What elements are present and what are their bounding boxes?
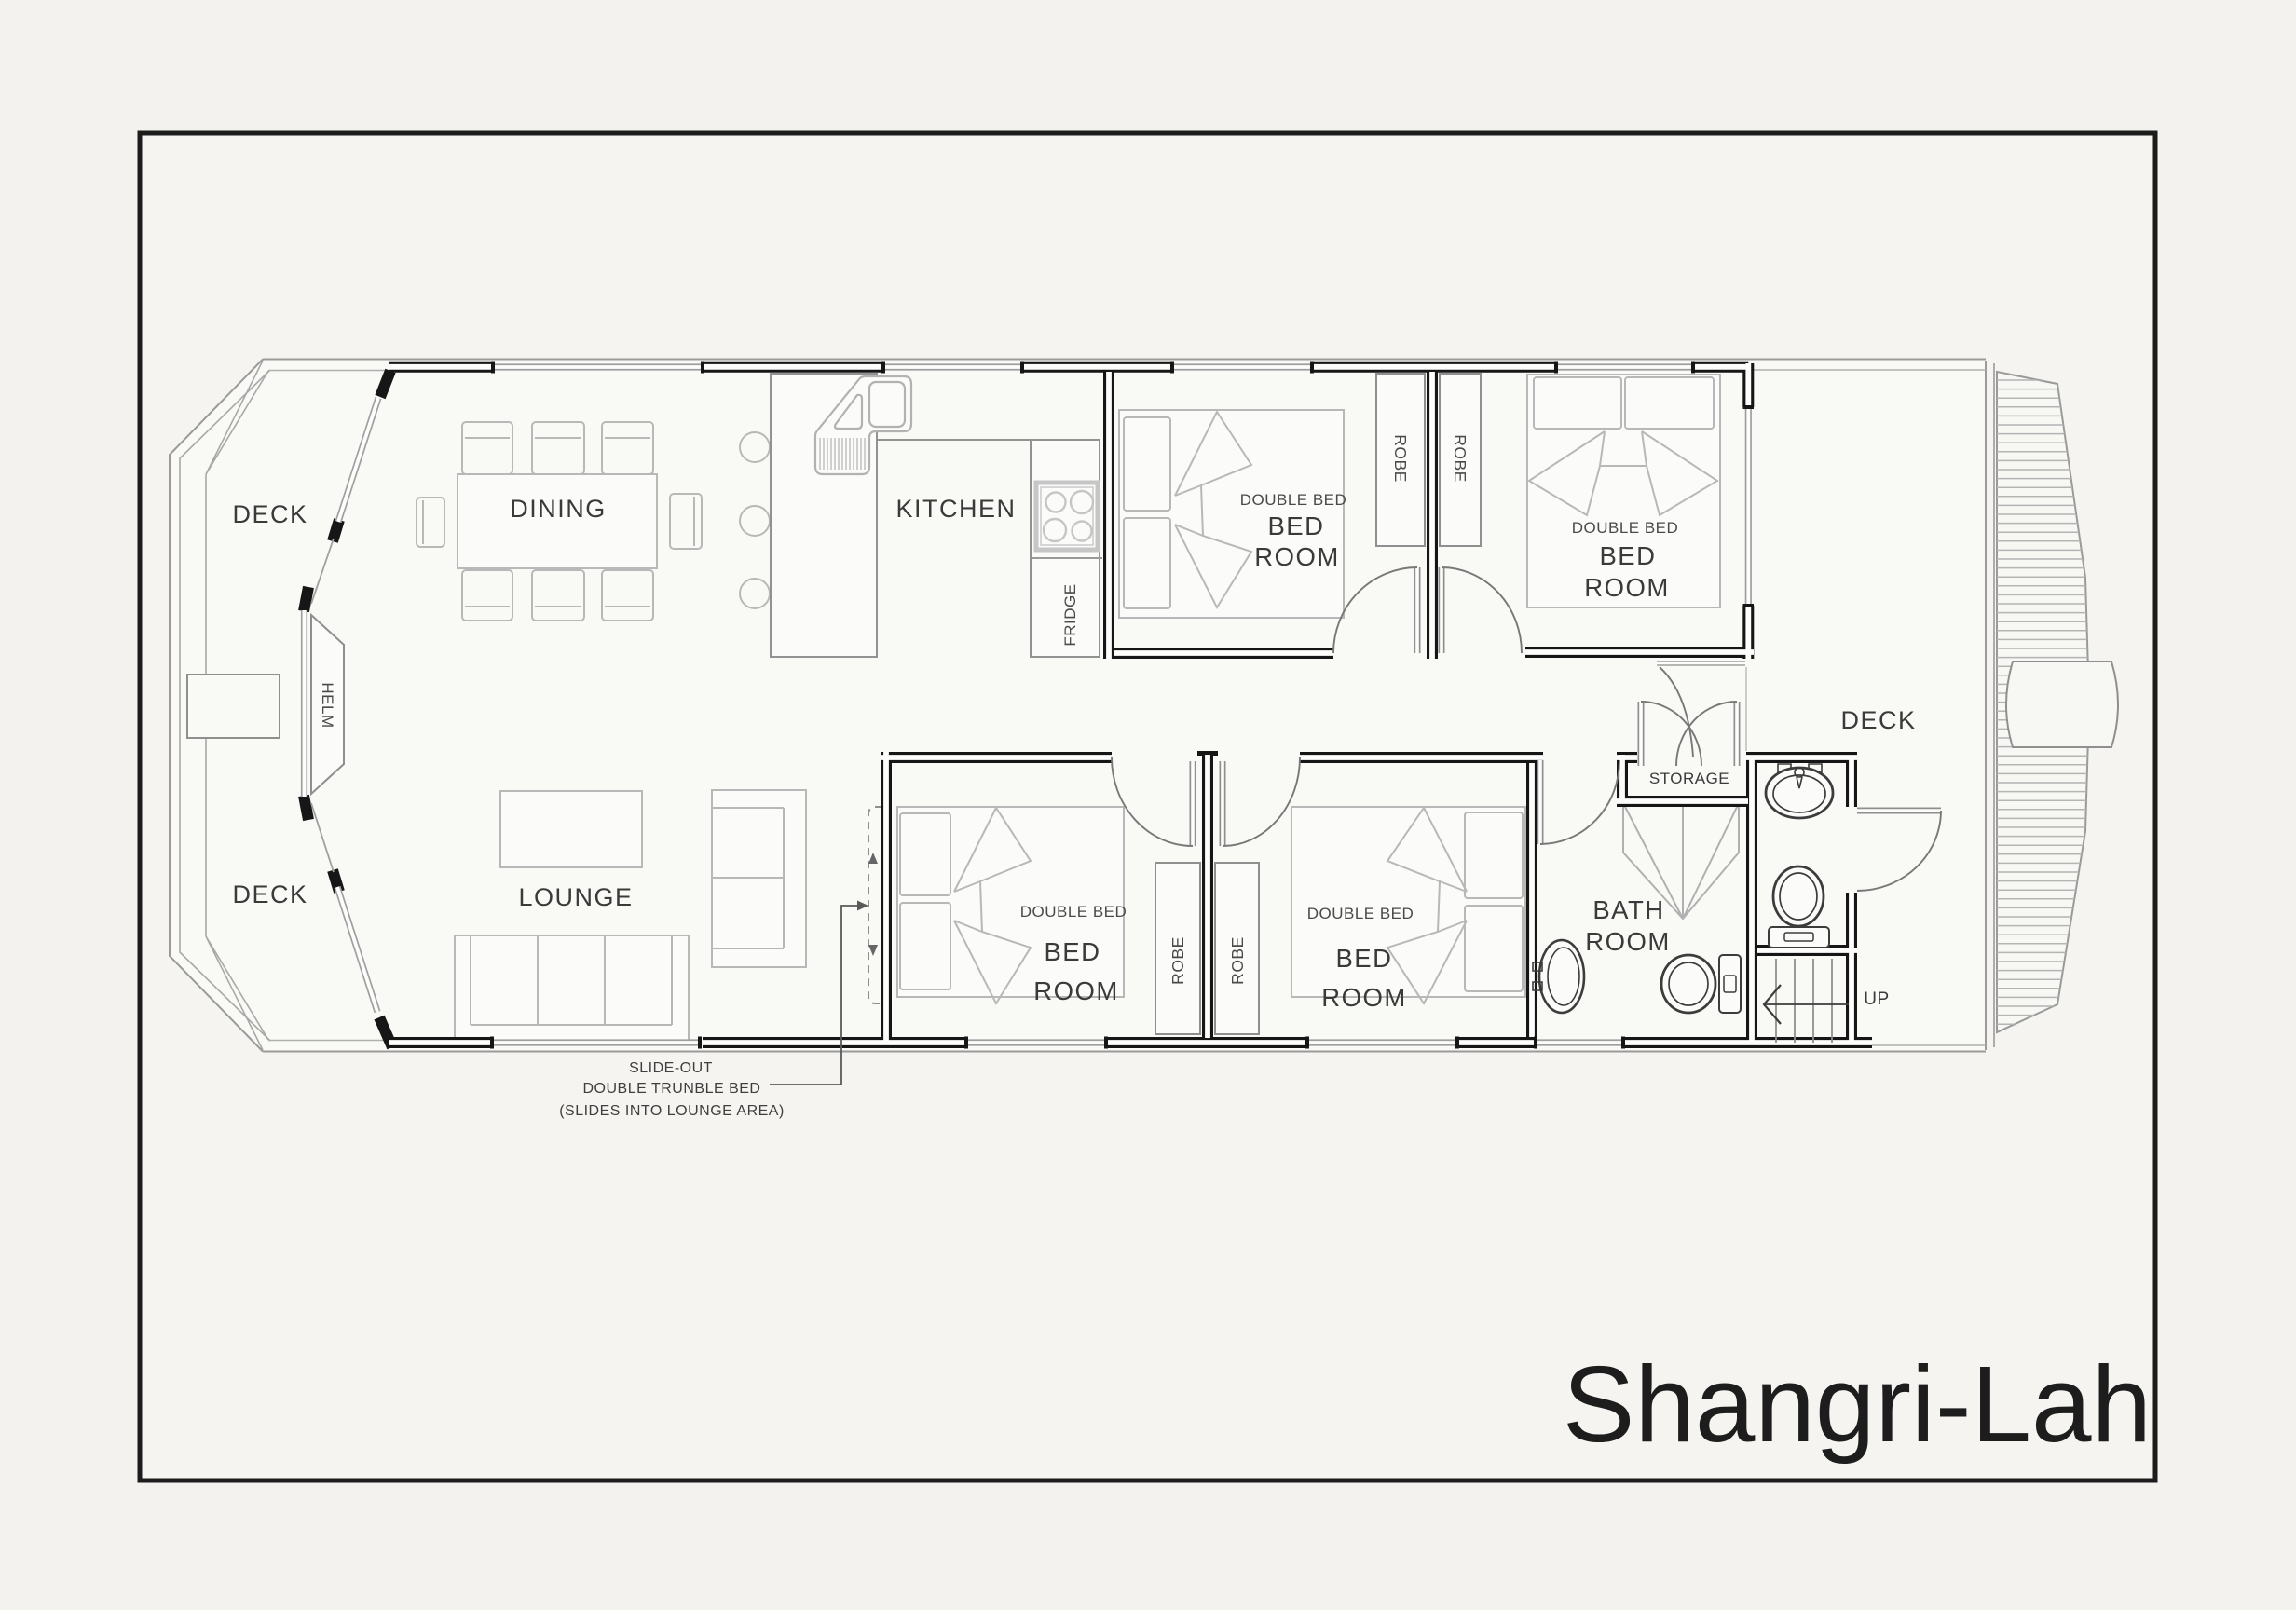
svg-text:DOUBLE BED: DOUBLE BED [1307,905,1414,922]
svg-text:DINING: DINING [510,495,607,523]
svg-text:STORAGE: STORAGE [1649,770,1729,787]
svg-text:ROBE: ROBE [1228,936,1247,985]
svg-text:BATH: BATH [1592,895,1664,924]
svg-text:HELM: HELM [319,682,336,728]
svg-text:Shangri-Lah: Shangri-Lah [1563,1344,2152,1465]
svg-text:SLIDE-OUT: SLIDE-OUT [629,1060,713,1076]
svg-text:(SLIDES INTO LOUNGE AREA): (SLIDES INTO LOUNGE AREA) [559,1103,785,1119]
svg-text:ROBE: ROBE [1168,936,1187,985]
svg-text:ROOM: ROOM [1585,927,1671,956]
svg-text:UP: UP [1864,989,1889,1009]
svg-text:DOUBLE TRUNBLE BED: DOUBLE TRUNBLE BED [583,1081,761,1097]
svg-text:DOUBLE BED: DOUBLE BED [1020,903,1127,921]
svg-text:DECK: DECK [1840,706,1916,734]
svg-text:DOUBLE BED: DOUBLE BED [1572,519,1679,537]
svg-text:ROBE: ROBE [1391,434,1410,483]
svg-text:BED: BED [1267,512,1324,540]
svg-text:BED: BED [1599,541,1656,570]
svg-text:ROOM: ROOM [1584,573,1670,602]
svg-text:ROOM: ROOM [1321,983,1407,1012]
svg-text:ROOM: ROOM [1254,542,1340,571]
svg-text:FRIDGE: FRIDGE [1061,583,1079,646]
svg-text:DECK: DECK [232,500,307,528]
svg-text:KITCHEN: KITCHEN [895,495,1016,523]
svg-text:BED: BED [1335,944,1392,973]
svg-text:DECK: DECK [232,880,307,908]
svg-text:ROOM: ROOM [1033,976,1119,1005]
svg-text:ROBE: ROBE [1451,434,1469,483]
svg-text:BED: BED [1044,937,1100,966]
svg-text:LOUNGE: LOUNGE [518,883,633,911]
svg-text:DOUBLE BED: DOUBLE BED [1240,491,1347,509]
